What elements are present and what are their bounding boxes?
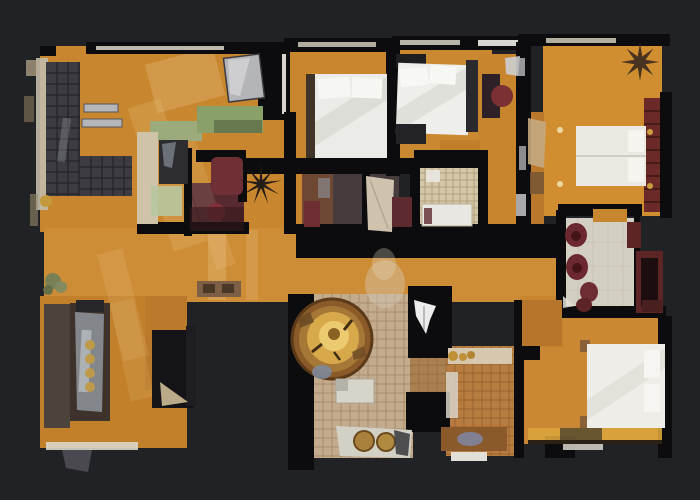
office-doorway-floor [593, 209, 627, 222]
small-maroon-chair [392, 197, 412, 227]
dining-gray-step [62, 450, 92, 472]
sink-bowl-1 [354, 431, 374, 451]
green-glass-table [151, 186, 182, 216]
hallway-light-streak-2 [246, 230, 258, 300]
bed-c-pillow-2 [628, 158, 644, 182]
dining-head-chair [76, 300, 104, 312]
mirror-glint-1 [517, 58, 525, 76]
closet-c-beige [528, 118, 546, 168]
top-trim-c [546, 38, 616, 43]
gold-jar-2 [459, 353, 467, 361]
bath2-glass-column [446, 372, 458, 418]
office-armchair-1-core [571, 231, 581, 241]
bed-a-pillow-1 [317, 77, 350, 99]
bed-d-white-dashes [563, 444, 603, 450]
green-counter-2-dark [214, 120, 262, 133]
floor-lamp-gold [40, 195, 52, 207]
shower-unit [366, 176, 394, 232]
wall-c-right [660, 92, 672, 218]
mid-wall-band [296, 224, 556, 258]
top-trim-living [96, 46, 224, 50]
bed-b-pillow-1 [399, 67, 429, 88]
dining-white-trim [46, 442, 138, 450]
balcony-fragment-1 [26, 60, 38, 76]
bath-maroon-edge [424, 208, 432, 224]
dinner-plate-2 [85, 354, 95, 364]
bathroom-top-wall [414, 150, 488, 168]
bed-b-side-dark [466, 60, 478, 132]
gold-jar-1 [448, 351, 458, 361]
kitchen-couch-notch [336, 379, 348, 391]
hall-console-drawer-2 [222, 284, 234, 293]
floor-plan-view [0, 0, 700, 500]
hall-haze-2 [372, 248, 396, 280]
bath2-towel [451, 452, 487, 461]
closet-c-shelf [530, 172, 544, 194]
dark-armchair-arm [186, 326, 196, 406]
office-armchair-2-core [572, 263, 582, 273]
bath2-bench-glint [457, 432, 483, 446]
floor-plan-svg [0, 0, 700, 500]
small-gray-bit [318, 178, 330, 198]
office-chair-4 [576, 298, 592, 312]
bed-b-pillow-2 [429, 65, 456, 85]
bed-d-bench-shadow [560, 428, 602, 440]
blue-object [312, 365, 332, 379]
red-lounge-shadow [190, 207, 244, 231]
bed-b-bench [396, 124, 426, 144]
kitchen-tile-mid [410, 356, 450, 396]
bed-c-lamp-1 [557, 127, 563, 133]
maroon-armchair [211, 157, 243, 195]
bed-d-bottom-line [528, 440, 662, 444]
bed-c-lamp-3 [647, 129, 653, 135]
bath-soap [426, 170, 440, 182]
kitchen-right-notch [408, 286, 452, 358]
dining-bench [44, 304, 70, 428]
desk-chair-red [491, 85, 513, 107]
dinner-plate-1 [85, 340, 95, 350]
top-trim-a [298, 42, 376, 47]
tv-baseboard [282, 54, 286, 114]
kitchen-door-notch [406, 392, 450, 432]
bed-c-lamp-2 [557, 181, 563, 187]
sink-bowl-2 [377, 433, 395, 451]
gold-jar-3 [467, 351, 475, 359]
star-plant [621, 43, 659, 81]
bedroom-d-entry-column [522, 300, 562, 346]
bed-a-pillow-2 [351, 77, 382, 99]
office-bottom-red-bit [642, 300, 662, 312]
top-trim-b [400, 40, 460, 45]
bed-c-lamp-4 [647, 183, 653, 189]
hall-console-drawer-1 [203, 284, 215, 293]
bed-c-pillow-1 [628, 130, 644, 152]
bed-d-pillow-1 [644, 350, 660, 378]
mirror-glint-3 [516, 194, 526, 216]
small-red-chair [304, 201, 320, 227]
dining-plant-3 [43, 285, 53, 295]
sink-shadow [394, 430, 410, 456]
office-bench-core [641, 258, 658, 306]
bookshelf-c [644, 98, 662, 212]
balcony-fragment-3 [30, 194, 38, 226]
dome-knob [328, 328, 340, 340]
dinner-plate-4 [85, 382, 95, 392]
coffee-table-1 [84, 104, 118, 112]
dining-plant-2 [55, 281, 67, 293]
top-trim-b2 [478, 40, 520, 46]
bed-a-headboard [306, 74, 315, 158]
balcony-fragment-2 [24, 96, 34, 122]
coffee-table-2 [82, 119, 122, 127]
bed-d-pillow-2 [644, 384, 660, 412]
corner-dark-top-left [40, 46, 56, 56]
mirror-glint-2 [519, 146, 526, 170]
office-shelf-top [627, 222, 641, 248]
dinner-plate-3 [85, 368, 95, 378]
wall-col-480 [478, 166, 488, 228]
office-left-wall [556, 210, 566, 312]
